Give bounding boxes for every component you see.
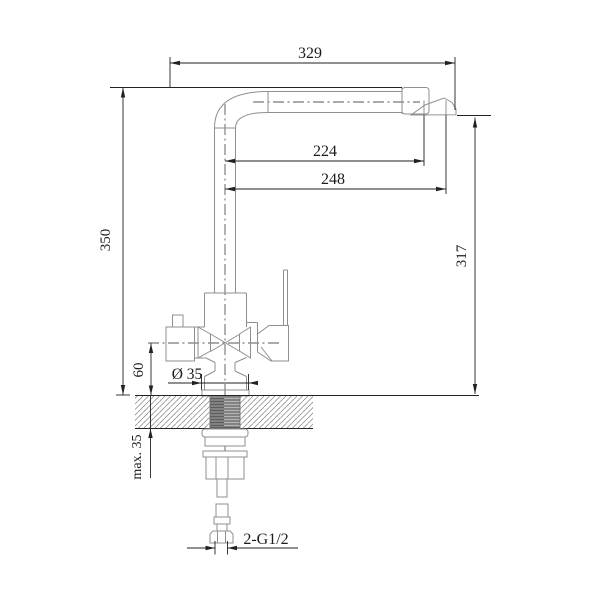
mounting-nut-flange xyxy=(203,451,247,457)
deck-hatch-right xyxy=(240,396,313,429)
washer-band xyxy=(205,437,245,446)
dim-label-overall-width: 329 xyxy=(298,45,322,62)
left-handle-body xyxy=(166,327,195,361)
riser-and-elbow xyxy=(215,92,269,294)
deck-hatch-left xyxy=(135,396,210,429)
left-handle xyxy=(166,315,195,361)
spout-end-cap xyxy=(402,88,429,115)
dim-label-max-deck-thickness: max. 35 xyxy=(130,434,145,479)
dim-label-overall-height: 350 xyxy=(98,229,114,252)
threaded-shank xyxy=(210,397,240,428)
faucet-technical-drawing: 329 224 248 350 317 60 m xyxy=(0,0,600,600)
hose-fitting-neck xyxy=(217,524,227,531)
drawing-canvas: 329 224 248 350 317 60 m xyxy=(0,0,600,600)
right-port xyxy=(240,327,251,358)
mounting-nut xyxy=(206,457,244,479)
dimension-60: 60 xyxy=(131,344,153,396)
countertop-section xyxy=(135,396,479,429)
left-port xyxy=(198,327,211,358)
spout-nozzle xyxy=(411,98,456,115)
hose-fitting-top xyxy=(216,504,228,517)
dim-label-reach-aerator: 224 xyxy=(313,143,337,160)
dimension-base-diameter: Ø 35 xyxy=(168,366,258,390)
dim-label-outlet-height: 317 xyxy=(454,244,470,267)
hose-fitting-band xyxy=(214,517,230,524)
hose-nut xyxy=(210,531,233,543)
dim-label-reach-tip: 248 xyxy=(321,171,345,188)
inlet-stem xyxy=(217,479,227,497)
under-deck-fittings xyxy=(202,429,248,543)
right-lever xyxy=(258,270,289,361)
dimension-inlet-connection: 2-G1/2 xyxy=(187,531,298,555)
dim-label-port-height: 60 xyxy=(131,363,147,378)
dimension-224: 224 xyxy=(225,115,424,166)
dim-label-inlet-connection: 2-G1/2 xyxy=(243,531,288,548)
dim-label-base-diameter: Ø 35 xyxy=(172,366,203,383)
dimension-329: 329 xyxy=(170,45,455,110)
washer-plate xyxy=(202,429,248,437)
spout-pipe xyxy=(268,88,429,115)
left-handle-stem xyxy=(173,315,184,327)
dimension-317: 317 xyxy=(454,116,491,395)
